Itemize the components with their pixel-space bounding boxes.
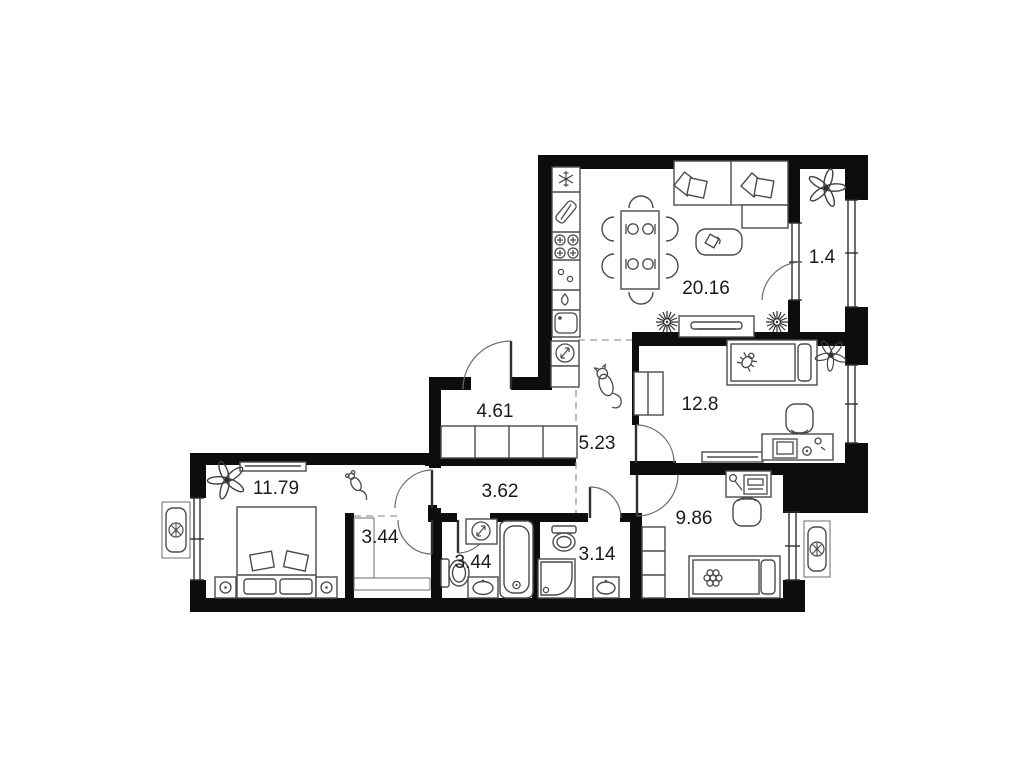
door-bedroom-bottom [637, 475, 678, 516]
ac-unit-right [804, 521, 830, 577]
wardrobe [642, 527, 665, 598]
coffee-table [696, 229, 742, 255]
desk-chair [733, 497, 761, 526]
door-balcony [762, 262, 802, 300]
room-label-bedroom-left: 11.79 [253, 478, 299, 499]
toilet [552, 526, 576, 551]
sofa [674, 161, 788, 228]
door-bedroom-right [636, 425, 674, 463]
shower [538, 559, 575, 598]
room-label-bedroom-right: 12.8 [682, 394, 719, 415]
ac-unit-left [162, 502, 190, 558]
room-label-corridor: 3.62 [482, 481, 519, 502]
room-label-bedroom-bottom: 9.86 [676, 508, 713, 529]
radiator-icon [656, 311, 678, 333]
bedroom-left-furniture [202, 455, 370, 598]
electric-panel [551, 341, 579, 387]
desk-chair [786, 404, 813, 433]
dining-set [602, 196, 678, 304]
bathtub [500, 521, 533, 598]
kitchen-counter [552, 167, 580, 337]
fan-icon [810, 542, 824, 556]
bedroom-right-furniture [634, 332, 854, 462]
door-wc [590, 487, 621, 518]
room-label-storage: 4.61 [477, 401, 514, 422]
mouse-icon [345, 470, 370, 503]
room-label-closet: 3.44 [362, 527, 399, 548]
room-label-balcony: 1.4 [809, 247, 836, 268]
bedroom-bottom-furniture [642, 471, 780, 598]
washbasin [468, 577, 498, 598]
plant-icon [802, 164, 850, 210]
tv-stand [679, 316, 754, 337]
door-closet [398, 520, 432, 554]
washbasin [593, 577, 619, 598]
window-balcony [845, 200, 858, 307]
floor-plan: 20.16 1.4 12.8 4.61 5.23 3.62 11.79 3.44… [0, 0, 1024, 768]
window-bedroom-bottom [785, 512, 800, 580]
room-label-wc: 3.14 [579, 544, 616, 565]
water-heater-icon [466, 519, 497, 544]
radiator-icon [766, 311, 788, 333]
window-bedroom-right [845, 365, 858, 443]
cat-icon [594, 363, 623, 410]
floor-plan-page: 20.16 1.4 12.8 4.61 5.23 3.62 11.79 3.44… [0, 0, 1024, 768]
door-bedroom-left [395, 470, 433, 508]
storage-wardrobe [441, 426, 577, 458]
window-bedroom-left [190, 498, 204, 580]
fan-icon [169, 523, 183, 537]
room-label-bathroom: 3.44 [455, 552, 492, 573]
room-label-kitchen-living: 20.16 [682, 278, 730, 299]
room-label-hallway: 5.23 [579, 433, 616, 454]
